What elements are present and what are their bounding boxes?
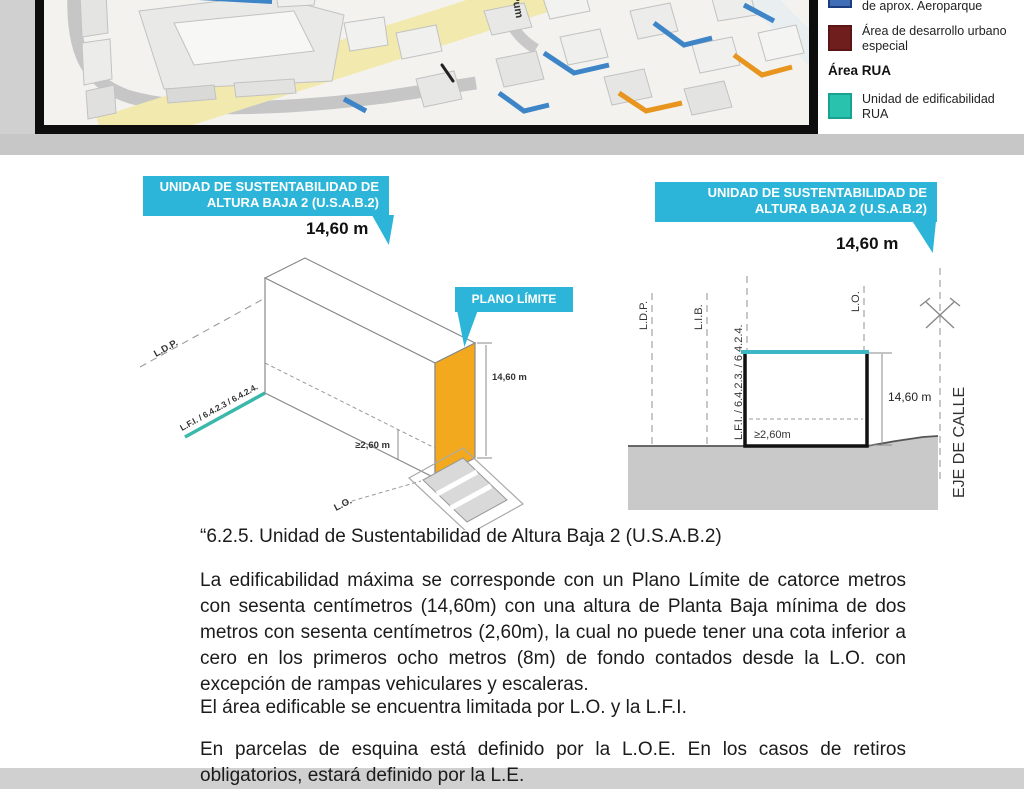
document-page: { "colors": { "cyan_bubble": "#2cb5d8", … (0, 0, 1024, 768)
height-value-left: 14,60 m (306, 219, 368, 239)
paragraph-3: En parcelas de esquina está definido por… (200, 737, 906, 789)
height-value-right: 14,60 m (836, 234, 898, 254)
usab2-title-bubble-right: UNIDAD DE SUSTENTABILIDAD DE ALTURA BAJA… (655, 182, 937, 222)
section-axis-marker (920, 298, 960, 328)
section-label-lfi: L.F.I. / 6.4.2.3. / 6.4.2.4. (733, 324, 745, 440)
usab2-title-left-line2: ALTURA BAJA 2 (U.S.A.B.2) (151, 195, 379, 211)
usab2-title-bubble-left: UNIDAD DE SUSTENTABILIDAD DE ALTURA BAJA… (143, 176, 389, 216)
zoning-map-canvas: Pum (44, 0, 809, 125)
iso-plano-limite-plane (435, 343, 475, 478)
usab2-title-right-line1: UNIDAD DE SUSTENTABILIDAD DE (663, 185, 927, 201)
section-label-lib: L.I.B. (693, 304, 705, 330)
legend-label-rua-1: Unidad de edificabilidad (862, 92, 995, 107)
usab2-title-right-line2: ALTURA BAJA 2 (U.S.A.B.2) (663, 201, 927, 217)
legend-swatch-aeroparque (828, 0, 852, 8)
legend-label-rua-2: RUA (862, 107, 888, 122)
section-heading: “6.2.5. Unidad de Sustentabilidad de Alt… (200, 524, 906, 550)
page-divider-band (0, 134, 1024, 155)
section-label-ldp: L.D.P. (638, 301, 650, 330)
section-dim-value: 14,60 m (888, 390, 931, 404)
iso-label-ldp: L.D.P. (152, 338, 180, 360)
iso-label-lfi: L.F.I. / 6.4.2.3 / 6.4.2.4. (178, 382, 259, 433)
map-legend: de aprox. Aeroparque Área de desarrollo … (818, 0, 1024, 134)
usab2-title-left-line1: UNIDAD DE SUSTENTABILIDAD DE (151, 179, 379, 195)
section-pb-dim-value: ≥2,60m (754, 429, 791, 441)
zoning-map-frame: Pum (35, 0, 818, 134)
section-diagram: L.D.P. L.I.B. L.F.I. / 6.4.2.3. / 6.4.2.… (620, 268, 1015, 523)
iso-pb-dim-value: ≥2,60 m (355, 440, 390, 451)
plano-limite-label: PLANO LÍMITE (459, 290, 569, 309)
legend-swatch-desarrollo (828, 25, 852, 51)
legend-swatch-rua (828, 93, 852, 119)
paragraph-1: La edificabilidad máxima se corresponde … (200, 568, 906, 698)
legend-label-aeroparque: de aprox. Aeroparque (862, 0, 982, 14)
iso-lo-line (345, 481, 421, 503)
iso-label-lo: L.O. (332, 495, 353, 513)
legend-label-desarrollo-2: especial (862, 39, 908, 54)
iso-dim-value: 14,60 m (492, 372, 527, 383)
section-label-lo: L.O. (850, 291, 862, 312)
legend-label-desarrollo-1: Área de desarrollo urbano (862, 24, 1007, 39)
legend-section-header: Área RUA (828, 63, 891, 78)
section-label-eje: EJE DE CALLE (951, 387, 968, 498)
plano-limite-bubble: PLANO LÍMITE (455, 287, 573, 312)
paragraph-2: El área edificable se encuentra limitada… (200, 695, 906, 721)
